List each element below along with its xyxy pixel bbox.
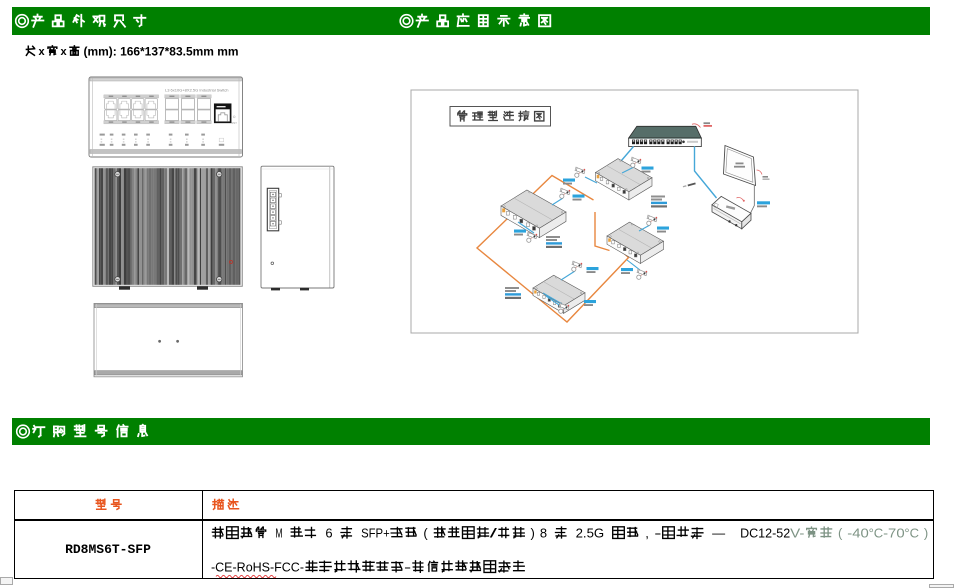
svg-text:RST: RST bbox=[232, 121, 238, 125]
svg-text:-: - bbox=[654, 525, 661, 540]
svg-text:6: 6 bbox=[325, 525, 332, 540]
svg-text:RD8MS6T-SFP: RD8MS6T-SFP bbox=[65, 542, 151, 557]
svg-text:°C: °C bbox=[904, 525, 919, 540]
svg-text:x: x bbox=[61, 46, 68, 58]
svg-text:V-: V- bbox=[790, 525, 804, 540]
svg-text:-40: -40 bbox=[847, 525, 869, 540]
svg-text:DC12-52: DC12-52 bbox=[740, 525, 790, 540]
svg-text:-: - bbox=[404, 559, 411, 574]
svg-text:,: , bbox=[645, 525, 649, 540]
svg-text:°C: °C bbox=[869, 525, 884, 540]
svg-text:8: 8 bbox=[540, 525, 547, 540]
svg-text:x: x bbox=[39, 46, 46, 58]
svg-text:SFP+: SFP+ bbox=[361, 525, 390, 540]
svg-text:(: ( bbox=[838, 525, 843, 540]
svg-text:): ) bbox=[924, 525, 928, 540]
svg-text:-70: -70 bbox=[883, 525, 905, 540]
svg-text:/: / bbox=[490, 525, 498, 540]
svg-text:(: ( bbox=[423, 525, 428, 540]
svg-text:L3 6x10G+8X2.5G Industrial S: L3 6x10G+8X2.5G Industrial Switch bbox=[165, 88, 228, 93]
svg-text:-CE-RoHS-FCC-: -CE-RoHS-FCC- bbox=[211, 559, 304, 574]
svg-text:2.5G: 2.5G bbox=[576, 525, 605, 540]
svg-text:M: M bbox=[275, 525, 282, 540]
svg-text:—: — bbox=[712, 525, 725, 540]
svg-text:(mm): 166*137*83.5mm mm: (mm): 166*137*83.5mm mm bbox=[84, 45, 239, 59]
svg-text:): ) bbox=[531, 525, 535, 540]
